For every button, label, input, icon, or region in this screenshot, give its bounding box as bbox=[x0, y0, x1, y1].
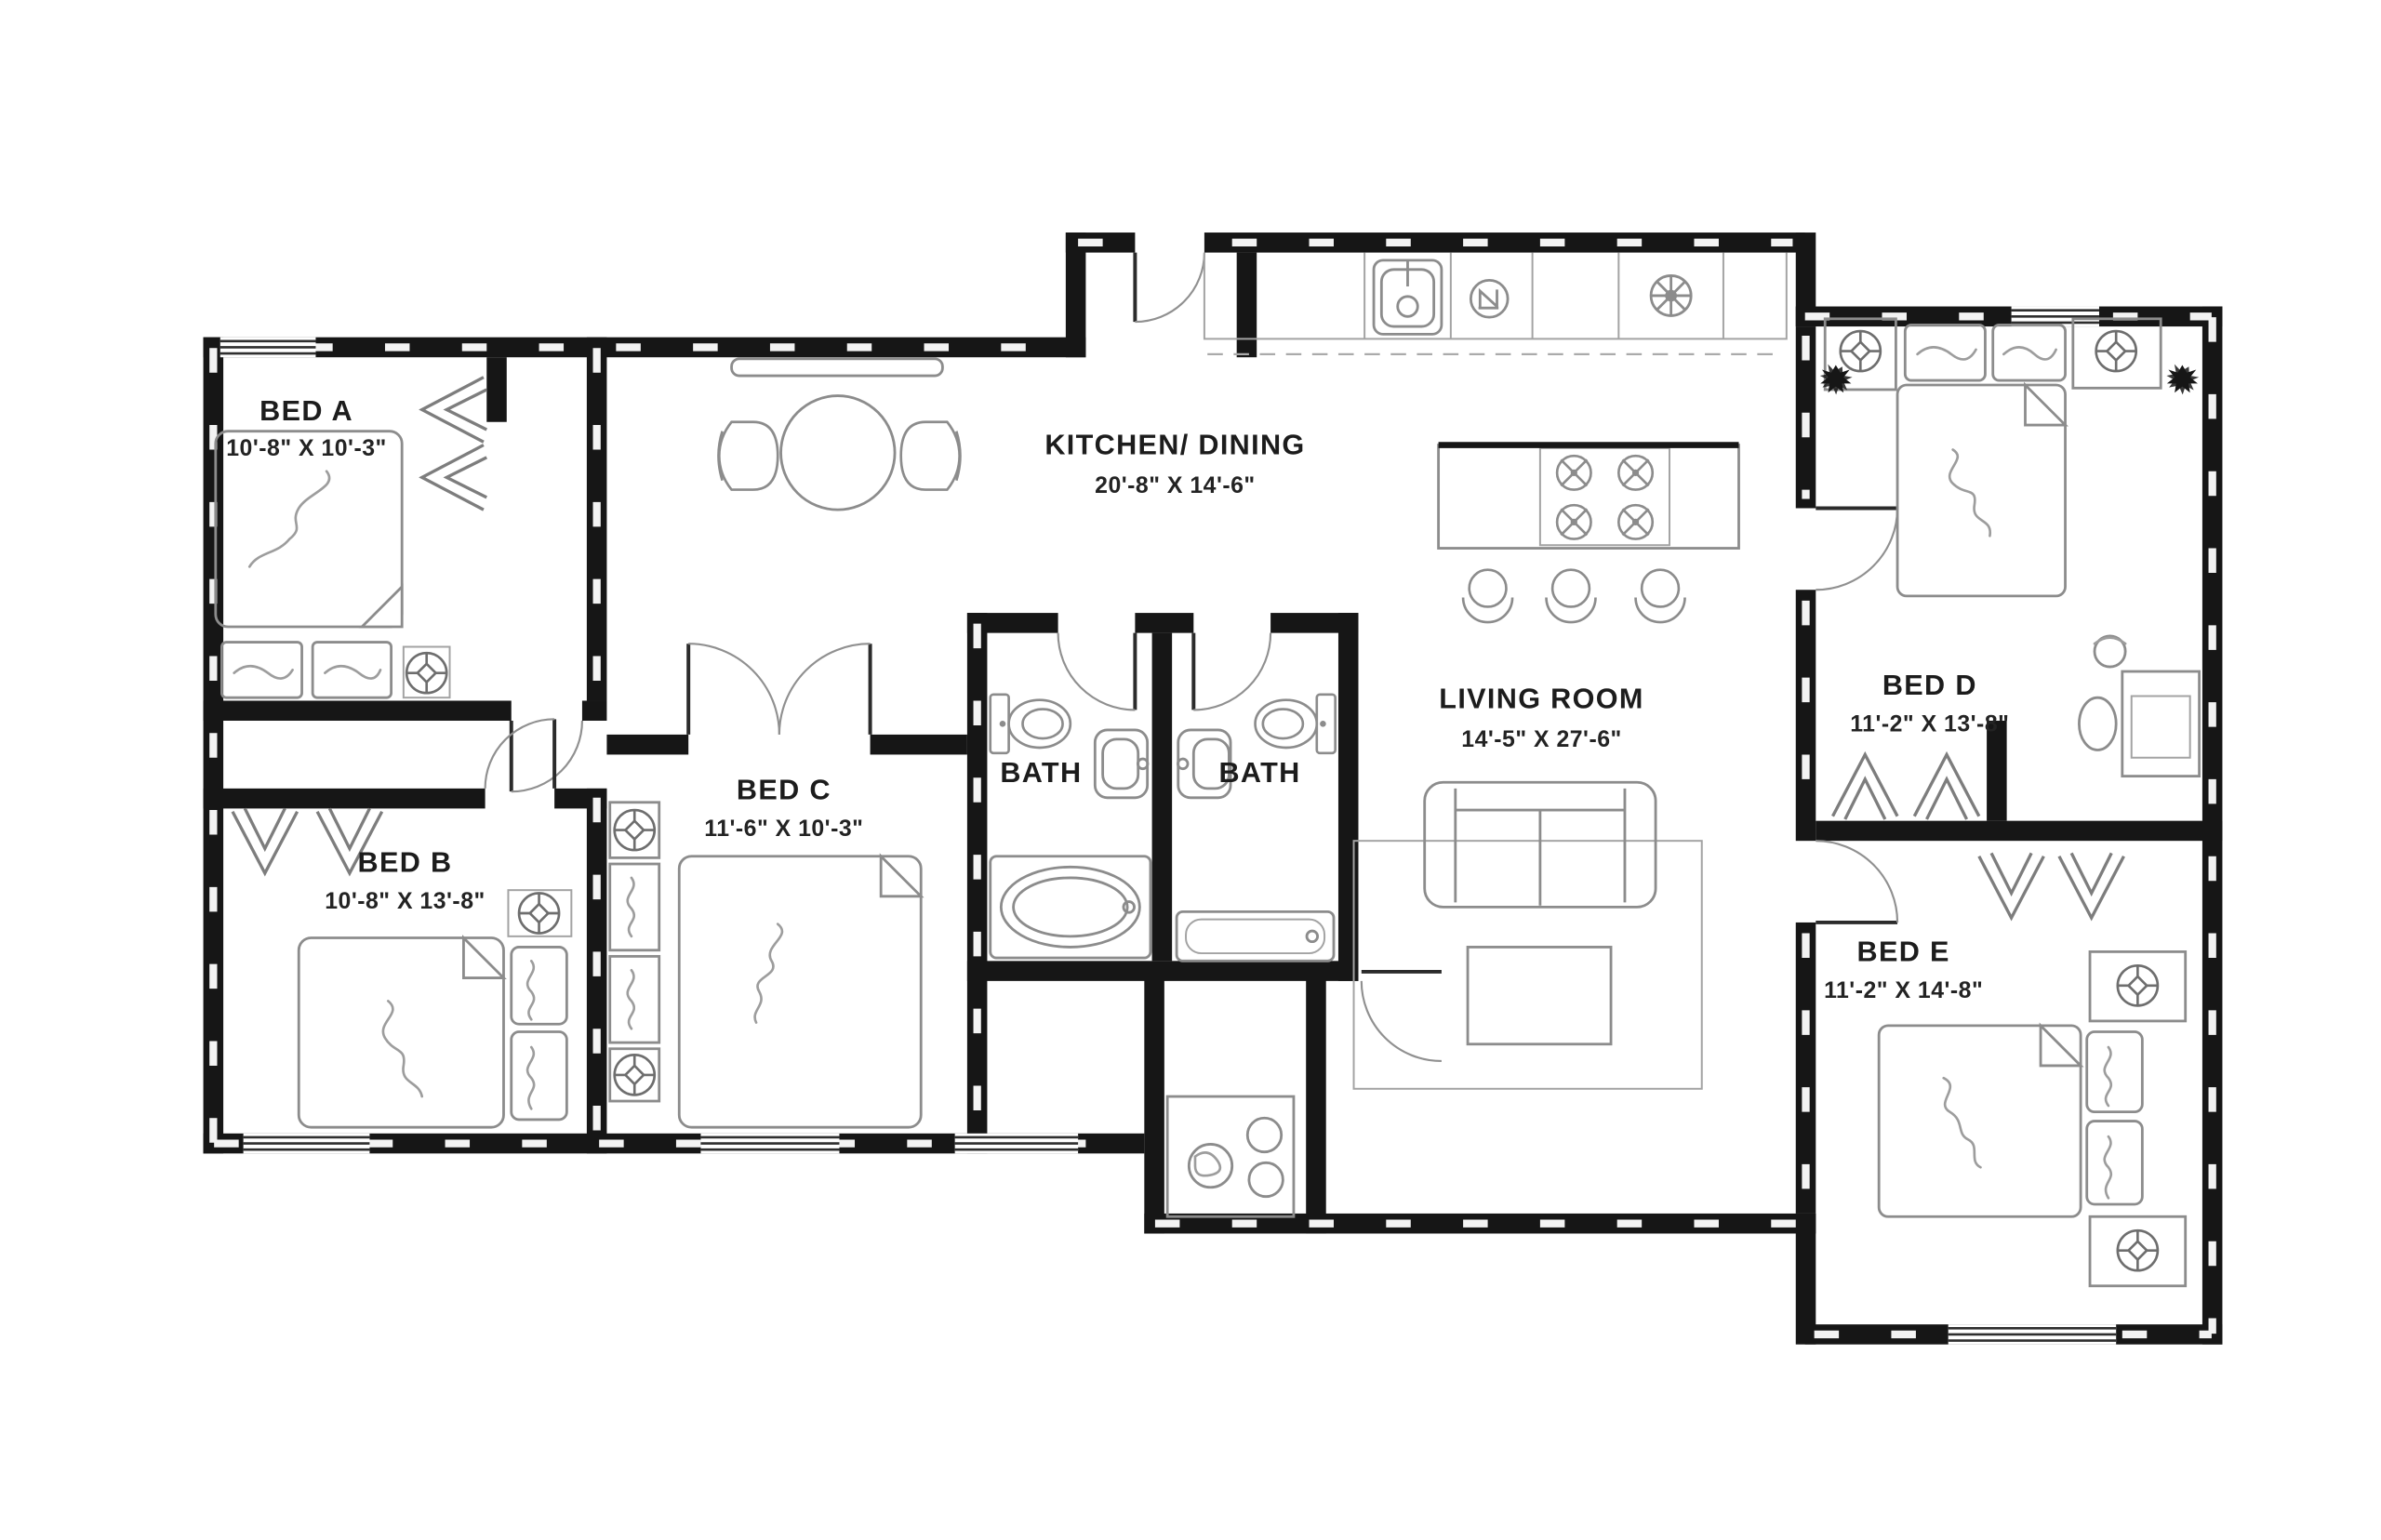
washer-icon bbox=[1189, 1144, 1231, 1187]
laundry-basin bbox=[1249, 1162, 1283, 1196]
double-bed bbox=[1897, 385, 2065, 596]
room-labels: BED A 10'-8" X 10'-3" BED B 10'-8" X 13'… bbox=[226, 395, 2009, 1003]
laundry-fixtures bbox=[1167, 1096, 1294, 1216]
pillow bbox=[512, 1032, 567, 1120]
bed-e-furniture bbox=[1879, 853, 2186, 1285]
doors bbox=[486, 253, 1897, 1061]
ceiling-fan-light-icon bbox=[615, 810, 655, 850]
room-label-bath-1: BATH bbox=[1000, 757, 1082, 789]
room-dims-kitchen-dining: 20'-8" X 14'-6" bbox=[1095, 473, 1256, 498]
room-label-living-room: LIVING ROOM bbox=[1439, 684, 1643, 715]
bed-a-door bbox=[512, 721, 582, 791]
bed-d-furniture bbox=[1816, 319, 2202, 819]
rug bbox=[1354, 841, 1702, 1089]
bed-d-door bbox=[1816, 508, 1897, 590]
ceiling-fan-light-icon bbox=[1841, 331, 1881, 371]
dresser bbox=[221, 643, 391, 698]
window bbox=[700, 1134, 839, 1154]
ceiling-fan-light-icon bbox=[615, 1055, 655, 1095]
table-lamp-icon bbox=[2095, 636, 2125, 667]
dining-chair bbox=[718, 422, 778, 490]
dining-fixtures bbox=[718, 359, 960, 510]
room-dims-bed-c: 11'-6" X 10'-3" bbox=[704, 816, 863, 842]
room-dims-bed-a: 10'-8" X 10'-3" bbox=[226, 436, 387, 461]
pillow bbox=[1993, 325, 2066, 380]
potted-plant-icon bbox=[2162, 359, 2202, 398]
room-label-bath-2: BATH bbox=[1218, 757, 1300, 789]
floor-plan: BED A 10'-8" X 10'-3" BED B 10'-8" X 13'… bbox=[0, 0, 2381, 1540]
window bbox=[244, 1134, 370, 1154]
window bbox=[1949, 1324, 2116, 1345]
ceiling-fan-light-icon bbox=[2096, 331, 2136, 371]
bar-stools bbox=[1463, 570, 1684, 622]
pillow bbox=[2087, 1032, 2143, 1112]
kitchen-sink-icon bbox=[1374, 260, 1442, 334]
double-bed bbox=[1879, 1026, 2081, 1216]
toilet-icon bbox=[1256, 695, 1336, 753]
room-dims-living-room: 14'-5" X 27'-6" bbox=[1461, 727, 1622, 752]
closet-rod-chevron-icon bbox=[1979, 853, 2044, 918]
bath-1-door bbox=[1058, 633, 1136, 710]
room-label-kitchen-dining: KITCHEN/ DINING bbox=[1044, 430, 1305, 461]
desk-chair bbox=[2079, 697, 2116, 750]
pillow bbox=[512, 947, 567, 1024]
desk bbox=[2122, 671, 2200, 777]
bed-e-door bbox=[1816, 841, 1897, 923]
pillow bbox=[1905, 325, 1985, 380]
room-dims-bed-e: 11'-2" X 14'-8" bbox=[1824, 978, 1983, 1003]
room-label-bed-e: BED E bbox=[1857, 936, 1950, 967]
closet-rod-chevron-icon bbox=[2059, 853, 2124, 918]
room-label-bed-c: BED C bbox=[737, 774, 831, 805]
closet-rod-chevron-icon bbox=[1833, 754, 1898, 819]
window bbox=[2012, 307, 2099, 327]
entry-door bbox=[1135, 253, 1204, 323]
double-bed bbox=[679, 856, 921, 1127]
ceiling-fan-light-icon bbox=[519, 893, 559, 933]
floor-plan-drawing: BED A 10'-8" X 10'-3" BED B 10'-8" X 13'… bbox=[0, 0, 2381, 1540]
room-label-bed-a: BED A bbox=[259, 395, 353, 427]
bed-c-double-door-right bbox=[779, 644, 871, 735]
closet-rod-chevron-icon bbox=[422, 378, 487, 443]
console-table bbox=[732, 359, 943, 376]
toilet-icon bbox=[991, 695, 1071, 753]
kitchen-counter bbox=[1204, 253, 1787, 339]
bathtub-icon bbox=[991, 856, 1151, 958]
living-room-fixtures bbox=[1354, 782, 1702, 1089]
cooktop-burners-icon bbox=[1557, 456, 1653, 538]
dining-chair bbox=[901, 422, 961, 490]
bed-c-double-door-left bbox=[688, 644, 779, 735]
ceiling-fan-light-icon bbox=[2118, 965, 2158, 1005]
room-dims-bed-d: 11'-2" X 13'-8" bbox=[1850, 712, 2009, 737]
closet-rod-chevron-icon bbox=[1914, 754, 1979, 819]
dining-table bbox=[781, 396, 896, 511]
closet-rod-chevron-icon bbox=[233, 808, 298, 873]
vanity-sink-icon bbox=[1095, 730, 1148, 798]
ceiling-fan-light-icon bbox=[2118, 1230, 2158, 1270]
room-dims-bed-b: 10'-8" X 13'-8" bbox=[325, 889, 486, 914]
window bbox=[955, 1134, 1078, 1154]
window bbox=[220, 338, 316, 358]
bed-b-door bbox=[486, 719, 555, 789]
pillow bbox=[2087, 1122, 2143, 1204]
bed-c-furniture bbox=[610, 803, 921, 1127]
bath-2-door bbox=[1193, 633, 1270, 710]
vent-fan-icon bbox=[1651, 275, 1691, 315]
coffee-table bbox=[1468, 947, 1611, 1043]
dishwasher-icon bbox=[1470, 280, 1508, 317]
sofa bbox=[1425, 782, 1656, 907]
room-label-bed-d: BED D bbox=[1882, 670, 1977, 701]
laundry-basin bbox=[1247, 1118, 1281, 1151]
room-label-bed-b: BED B bbox=[358, 846, 453, 878]
ceiling-fan-light-icon bbox=[406, 653, 446, 693]
living-room-door bbox=[1362, 972, 1442, 1061]
bath-2-fixtures bbox=[1177, 695, 1336, 961]
closet-rod-chevron-icon bbox=[422, 445, 487, 511]
double-bed bbox=[299, 938, 503, 1128]
bath-1-fixtures bbox=[991, 695, 1151, 958]
shower-tub-icon bbox=[1177, 911, 1334, 961]
